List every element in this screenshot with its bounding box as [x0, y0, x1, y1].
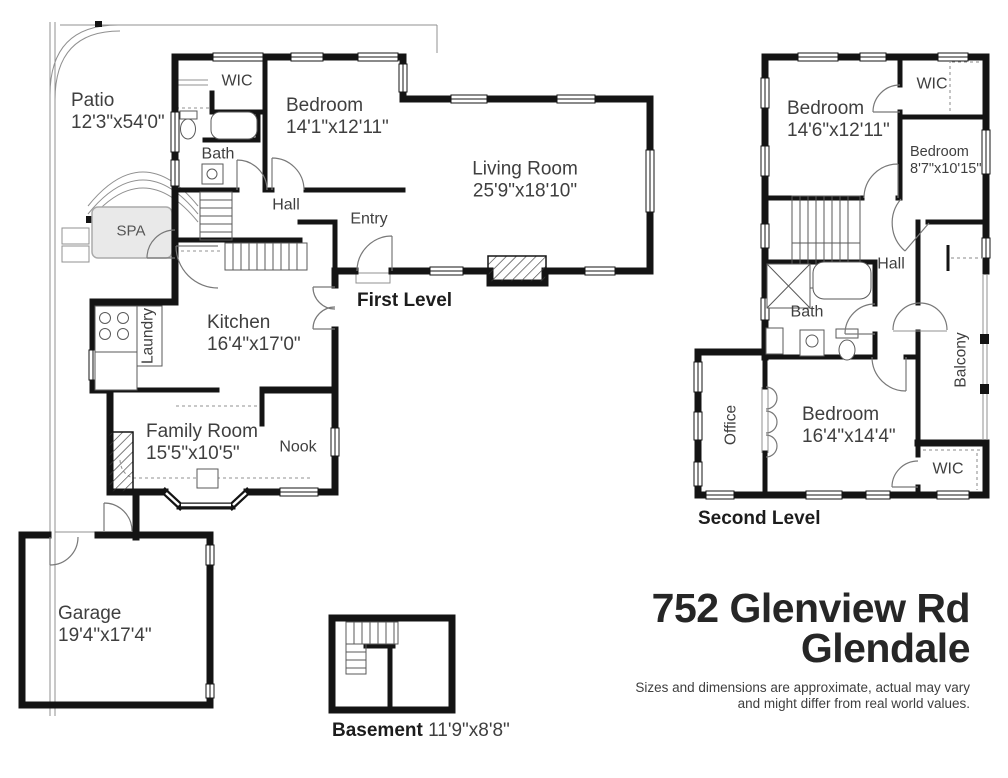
- room-label-bedroom-first: Bedroom 14'1"x12'11": [286, 95, 389, 138]
- room-label-kitchen: Kitchen 16'4"x17'0": [207, 312, 301, 355]
- room-label-hall-first: Hall: [272, 194, 300, 216]
- room-label-bath-first: Bath: [202, 143, 235, 165]
- room-label-nook: Nook: [279, 436, 316, 458]
- room-label-living-room: Living Room 25'9"x18'10": [472, 159, 578, 202]
- family-room-fireplace: [109, 432, 133, 492]
- room-label-spa: SPA: [117, 220, 146, 242]
- balcony-railing: [980, 275, 989, 440]
- room-label-bedroom-rear: Bedroom 16'4"x14'4": [802, 404, 896, 447]
- first-level-windows: [89, 53, 654, 698]
- room-label-balcony: Balcony: [950, 332, 972, 387]
- basement-interior-walls: [366, 646, 393, 710]
- room-label-wic-first: WIC: [221, 70, 252, 92]
- room-label-hall-second: Hall: [877, 253, 905, 275]
- room-label-bedroom-main: Bedroom 14'6"x12'11": [787, 98, 890, 141]
- room-label-entry: Entry: [350, 208, 387, 230]
- room-label-wic-top: WIC: [916, 73, 947, 95]
- closet-track: [762, 387, 768, 453]
- room-label-office: Office: [720, 405, 742, 445]
- basement-plan: [332, 618, 452, 710]
- closet-shelving-dashes: [923, 60, 983, 490]
- balcony-arch-opening: [893, 303, 947, 331]
- room-label-bath-second: Bath: [791, 301, 824, 323]
- room-label-laundry: Laundry: [137, 308, 159, 364]
- room-label-wic-bottom: WIC: [932, 458, 963, 480]
- room-label-patio: Patio 12'3"x54'0": [71, 90, 165, 133]
- first-level-title: First Level: [357, 290, 452, 312]
- disclaimer-text: Sizes and dimensions are approximate, ac…: [635, 680, 970, 712]
- site-tick: [95, 21, 102, 27]
- room-label-garage: Garage 19'4"x17'4": [58, 603, 152, 646]
- floor-plan-page: Patio 12'3"x54'0" SPA WIC Bedroom 14'1"x…: [0, 0, 1008, 778]
- living-room-fireplace: [488, 256, 546, 282]
- basement-title: Basement 11'9"x8'8": [332, 720, 510, 742]
- address-heading: 752 Glenview Rd Glendale: [652, 588, 970, 668]
- second-level-title: Second Level: [698, 508, 821, 530]
- room-label-bedroom-small: Bedroom 8'7"x10'15": [910, 144, 981, 177]
- room-label-family-room: Family Room 15'5"x10'5": [146, 421, 258, 464]
